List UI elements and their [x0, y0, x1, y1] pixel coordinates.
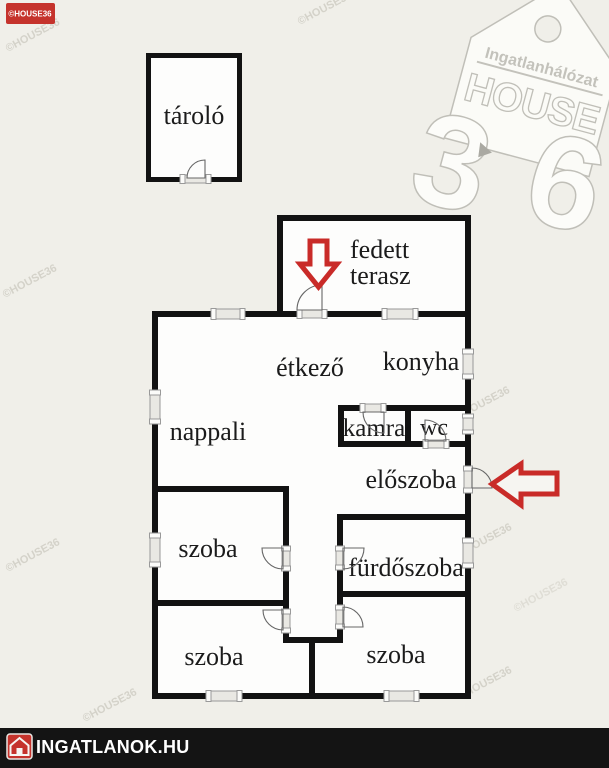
svg-text:konyha: konyha [383, 347, 460, 376]
svg-text:fürdőszoba: fürdőszoba [348, 553, 464, 582]
svg-text:szoba: szoba [184, 642, 244, 671]
svg-text:©HOUSE36: ©HOUSE36 [8, 10, 52, 19]
svg-text:étkező: étkező [276, 353, 344, 382]
svg-text:fedett: fedett [350, 235, 410, 264]
svg-text:tároló: tároló [164, 101, 225, 130]
svg-text:nappali: nappali [170, 417, 247, 446]
svg-text:wc: wc [420, 415, 448, 441]
svg-text:előszoba: előszoba [366, 465, 457, 494]
svg-text:INGATLANOK.HU: INGATLANOK.HU [36, 737, 190, 757]
svg-text:terasz: terasz [350, 261, 411, 290]
svg-text:szoba: szoba [366, 640, 426, 669]
svg-text:szoba: szoba [178, 534, 238, 563]
svg-text:kamra: kamra [343, 415, 405, 442]
